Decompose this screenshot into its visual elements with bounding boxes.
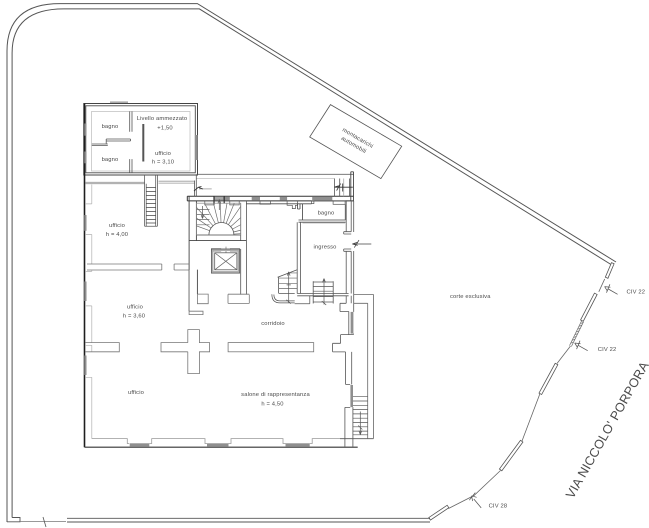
svg-text:+1,50: +1,50 [157, 126, 172, 132]
svg-text:h = 4,50: h = 4,50 [261, 402, 283, 408]
svg-text:h = 3,10: h = 3,10 [152, 160, 174, 166]
svg-text:Livello ammezzato: Livello ammezzato [137, 116, 188, 122]
svg-text:ufficio: ufficio [127, 305, 143, 311]
svg-text:h = 4,00: h = 4,00 [106, 232, 128, 238]
svg-text:salone di rappresentanza: salone di rappresentanza [241, 392, 310, 398]
svg-text:bagno: bagno [318, 211, 335, 217]
svg-text:h = 3,60: h = 3,60 [123, 314, 145, 320]
svg-text:bagno: bagno [102, 124, 119, 130]
svg-text:CIV 22: CIV 22 [627, 290, 646, 296]
svg-text:CIV 28: CIV 28 [489, 503, 508, 509]
svg-text:ufficio: ufficio [109, 223, 125, 229]
svg-text:corte esclusiva: corte esclusiva [450, 294, 491, 300]
svg-text:CIV 22: CIV 22 [598, 347, 617, 353]
svg-text:bagno: bagno [102, 157, 119, 163]
svg-text:corridoio: corridoio [261, 321, 285, 327]
svg-text:ingresso: ingresso [313, 245, 336, 251]
svg-text:ufficio: ufficio [155, 151, 171, 157]
svg-text:ufficio: ufficio [128, 390, 144, 396]
